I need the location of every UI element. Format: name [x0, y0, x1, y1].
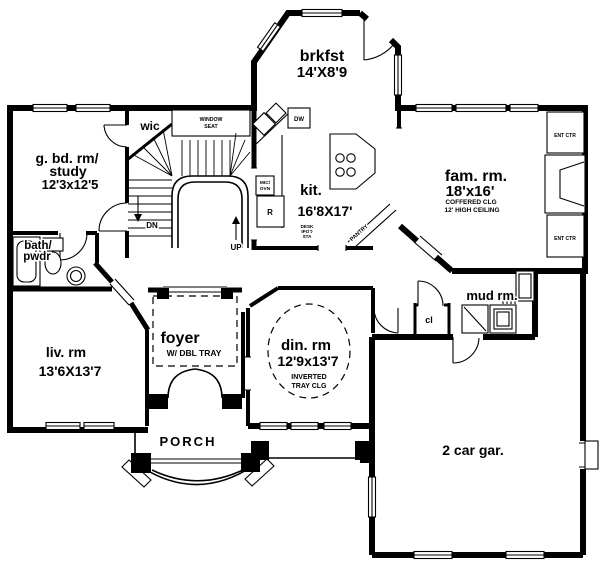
closet-door [418, 281, 443, 306]
label-window-seat-1: WINDOW [200, 117, 223, 123]
label-kitchen-dims: 16'8X17' [298, 203, 353, 219]
label-mud: mud rm. [466, 288, 517, 303]
label-window-seat-2: SEAT [204, 124, 218, 130]
floor-plan: brkfst 14'X8'9 g. bd. rm/ study 12'3x12'… [0, 0, 600, 569]
breakfast-door [364, 17, 394, 60]
window [291, 423, 318, 430]
label-guest-dims: 12'3x12'5 [42, 177, 99, 192]
pantry-shelves [348, 204, 396, 248]
label-ent-ctr-bottom: ENT CTR [554, 236, 576, 242]
window [84, 423, 114, 430]
label-family-note1: COFFERED CLG [445, 199, 496, 206]
label-mic-2: OVN [260, 186, 271, 192]
kitchen-island [330, 134, 375, 189]
bath-door [60, 233, 87, 260]
label-foyer-name: foyer [160, 330, 199, 347]
label-bath-line2: pwdr [23, 251, 51, 263]
windows [33, 10, 544, 559]
window [260, 423, 287, 430]
window [324, 423, 351, 430]
porch-column [131, 453, 151, 473]
mud-room-door [374, 308, 398, 333]
front-double-door [168, 369, 222, 398]
window [414, 552, 452, 559]
window [46, 423, 80, 430]
sink [67, 267, 85, 285]
window [395, 55, 402, 95]
window [258, 23, 281, 52]
window [76, 105, 110, 112]
window [302, 10, 342, 17]
window [510, 105, 538, 112]
label-dining-note1: INVERTED [291, 374, 326, 381]
exterior-walls [10, 13, 587, 555]
window [369, 477, 376, 517]
bedroom-door [99, 203, 127, 231]
label-brkfst-dims: 14'X8'9 [297, 64, 348, 81]
label-living-dims: 13'6X13'7 [39, 363, 102, 379]
label-desk-3: STA [303, 234, 313, 239]
terrace-column [355, 441, 372, 460]
garage-entry-door [453, 337, 479, 363]
window [33, 105, 67, 112]
window [416, 105, 452, 112]
label-garage: 2 car gar. [442, 442, 504, 458]
fireplace [545, 155, 585, 213]
window-seat [172, 110, 250, 136]
side-stoop [585, 441, 598, 469]
label-mic-1: MIC/ [260, 180, 271, 186]
label-up: UP [230, 243, 242, 252]
label-dining-dims: 12'9x13'7 [277, 353, 338, 369]
label-dining-name: din. rm [281, 337, 331, 354]
kitchen-fixtures [253, 103, 396, 248]
label-dw: DW [294, 117, 304, 123]
window [506, 552, 544, 559]
label-kitchen-name: kit. [300, 182, 322, 199]
label-living-name: liv. rm [46, 344, 86, 360]
label-pantry: PANTRY [349, 223, 370, 242]
label-family-note2: 12' HIGH CEILING [445, 207, 500, 214]
label-porch: PORCH [160, 434, 217, 449]
terrace-column [251, 441, 269, 460]
label-closet: cl [425, 315, 433, 325]
window [456, 105, 506, 112]
label-fridge: R [267, 208, 273, 217]
floor-plan-svg: brkfst 14'X8'9 g. bd. rm/ study 12'3x12'… [0, 0, 600, 569]
label-dn: DN [146, 221, 158, 230]
wic-door [104, 125, 127, 147]
label-wic: wic [139, 119, 160, 133]
label-dining-note2: TRAY CLG [291, 383, 327, 390]
label-ent-ctr-top: ENT CTR [554, 133, 576, 139]
label-brkfst-name: brkfst [300, 48, 345, 65]
label-family-dims: 18'x16' [446, 183, 495, 200]
label-foyer-note: W/ DBL TRAY [167, 348, 222, 358]
